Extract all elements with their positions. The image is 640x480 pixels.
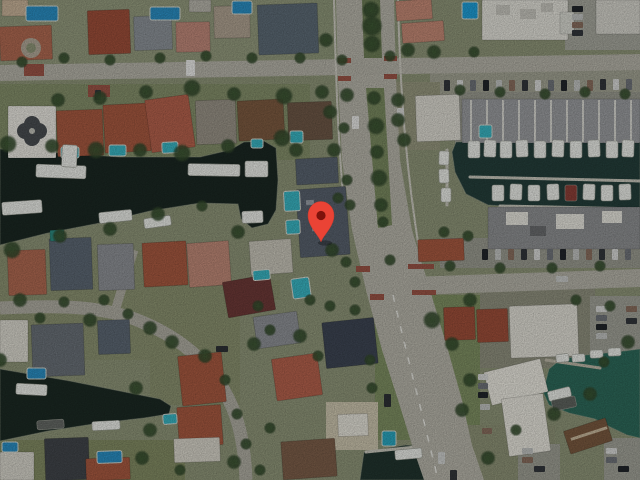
pin-dot bbox=[316, 211, 325, 220]
satellite-map[interactable] bbox=[0, 0, 640, 480]
pin-shadow bbox=[318, 240, 332, 245]
